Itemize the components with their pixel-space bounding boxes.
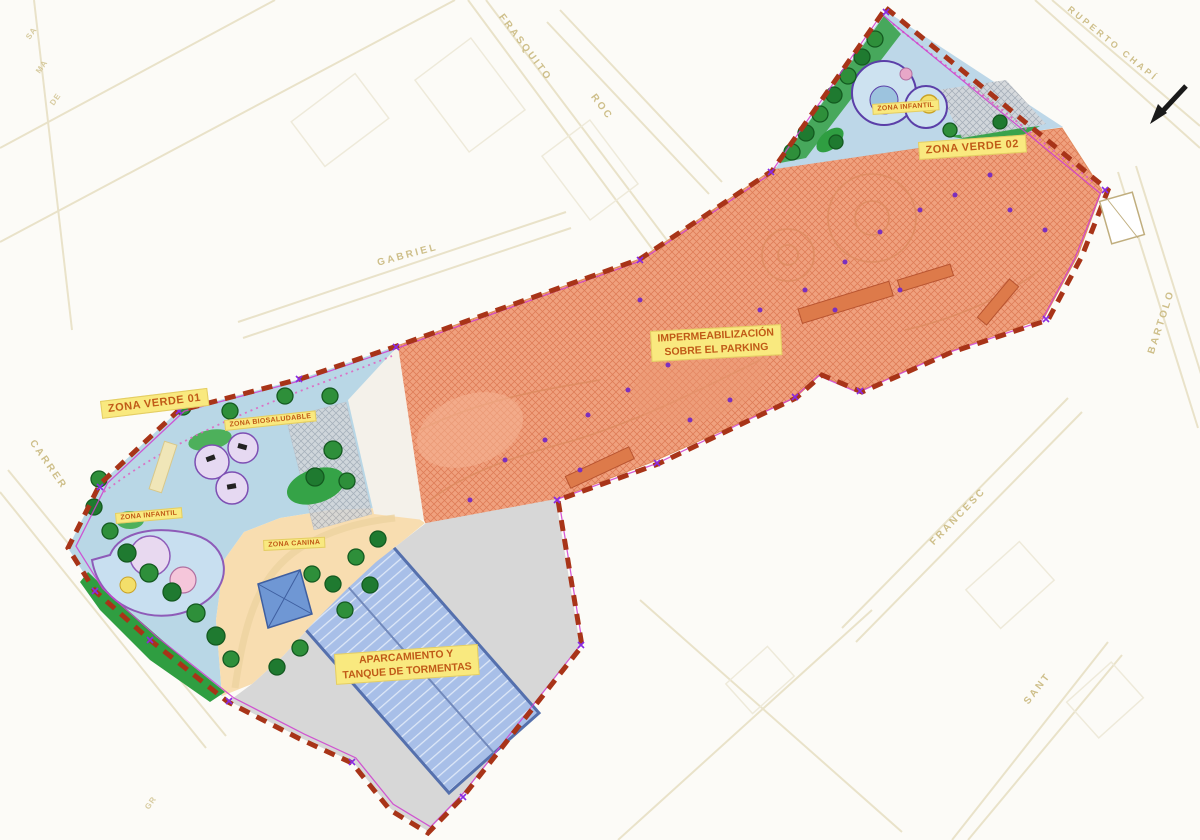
impermeabilizacion-zone — [352, 128, 1102, 523]
site-plan-svg — [0, 0, 1200, 840]
site-plan: ZONA VERDE 01 ZONA VERDE 02 IMPERMEABILI… — [0, 0, 1200, 840]
right-corner-structure — [1100, 192, 1145, 244]
